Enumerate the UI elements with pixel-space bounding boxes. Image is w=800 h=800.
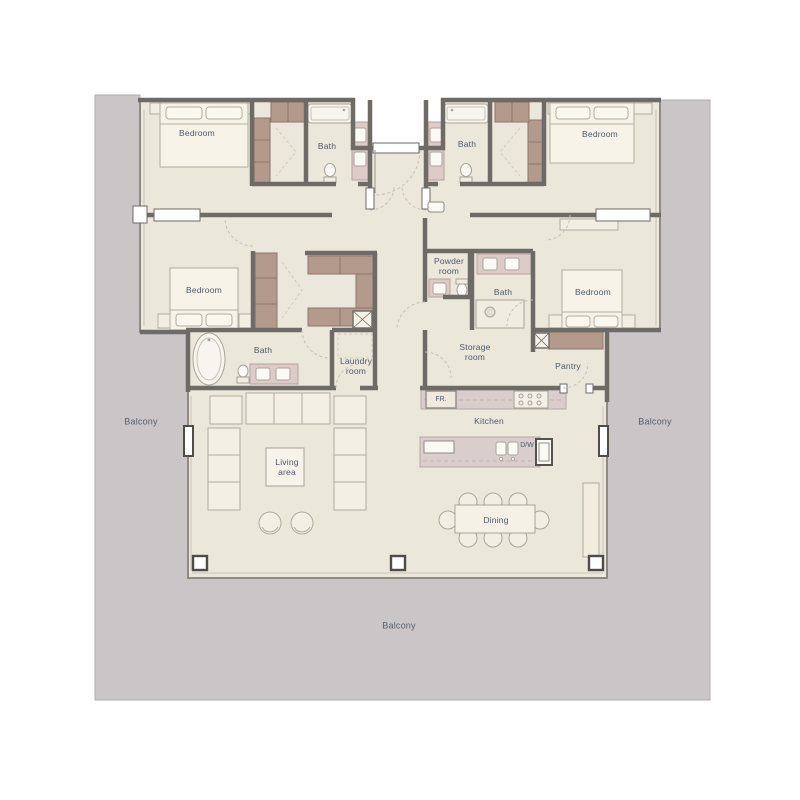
- pouf: [259, 512, 281, 534]
- dining-table: [455, 505, 535, 533]
- bed-mid-left: [158, 268, 252, 330]
- coffee-table: [266, 448, 304, 486]
- floor-plan-svg: [0, 0, 800, 800]
- cooktop: [514, 391, 548, 408]
- floor-plan: Bedroom Bath Bedroom Bath Bedroom Powder…: [0, 0, 800, 800]
- toilet: [461, 164, 472, 177]
- toilet: [238, 365, 248, 377]
- toilet: [325, 164, 336, 177]
- powder-room-fixtures: [429, 279, 468, 297]
- fridge-box: [426, 391, 456, 408]
- bed-top-left: [150, 103, 252, 167]
- pouf: [291, 512, 313, 534]
- bench: [583, 483, 599, 557]
- shower: [476, 300, 524, 328]
- toilet: [457, 284, 467, 297]
